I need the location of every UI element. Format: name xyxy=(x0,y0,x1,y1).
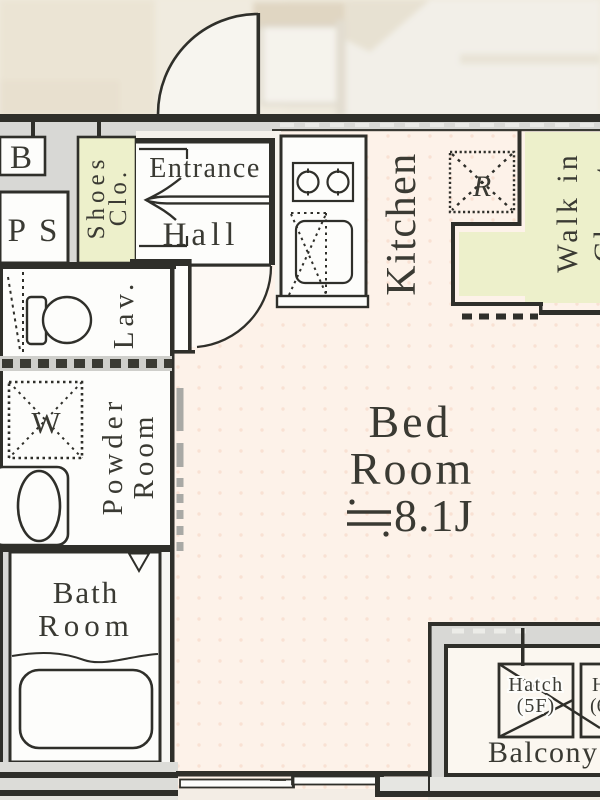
svg-text:W: W xyxy=(31,405,61,440)
svg-text:Closet: Closet xyxy=(588,162,600,263)
svg-text:Clo.: Clo. xyxy=(105,168,132,226)
svg-text:Kitchen: Kitchen xyxy=(379,152,425,295)
svg-text:Walk in: Walk in xyxy=(551,151,584,272)
svg-text:Balcony: Balcony xyxy=(488,736,598,769)
svg-text:Hatch: Hatch xyxy=(508,674,563,696)
svg-text:(6: (6 xyxy=(590,695,600,717)
svg-text:Bath: Bath xyxy=(53,575,120,610)
svg-text:Room: Room xyxy=(38,608,134,643)
svg-text:8.1J: 8.1J xyxy=(394,490,473,541)
svg-text:Bed: Bed xyxy=(368,396,451,447)
svg-text:Powder: Powder xyxy=(97,397,129,516)
svg-text:Room: Room xyxy=(128,413,160,500)
svg-text:B: B xyxy=(10,140,32,176)
svg-text:Hall: Hall xyxy=(163,217,240,253)
svg-text:(5F): (5F) xyxy=(517,695,555,717)
svg-text:Entrance: Entrance xyxy=(149,153,261,184)
svg-text:Ha: Ha xyxy=(592,674,600,696)
svg-text:Lav.: Lav. xyxy=(108,279,140,349)
svg-text:P S: P S xyxy=(8,213,61,249)
svg-text:R: R xyxy=(472,170,491,203)
svg-text:Room: Room xyxy=(350,443,474,494)
